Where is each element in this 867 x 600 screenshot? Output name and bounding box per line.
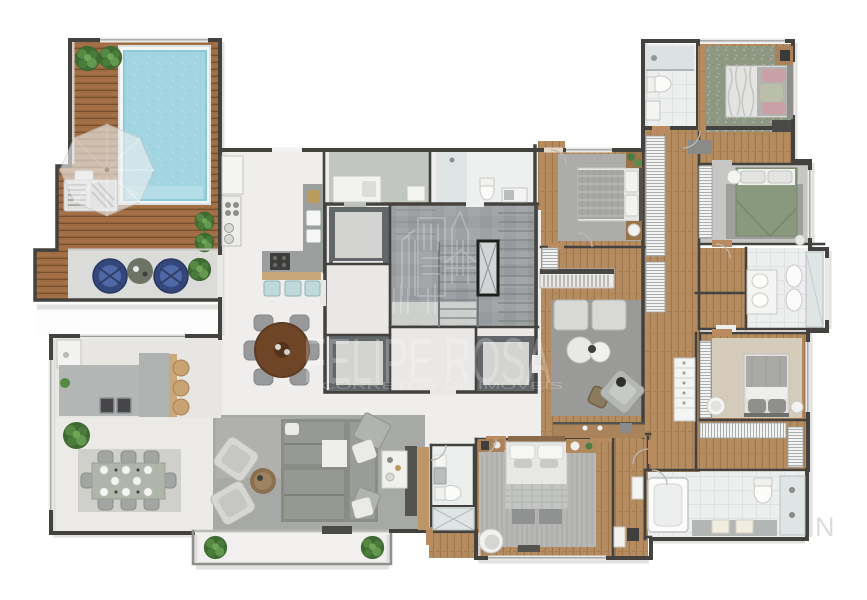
svg-text:CORRETOR DE IMÓVEIS: CORRETOR DE IMÓVEIS xyxy=(321,379,563,392)
svg-text:N: N xyxy=(815,512,835,542)
